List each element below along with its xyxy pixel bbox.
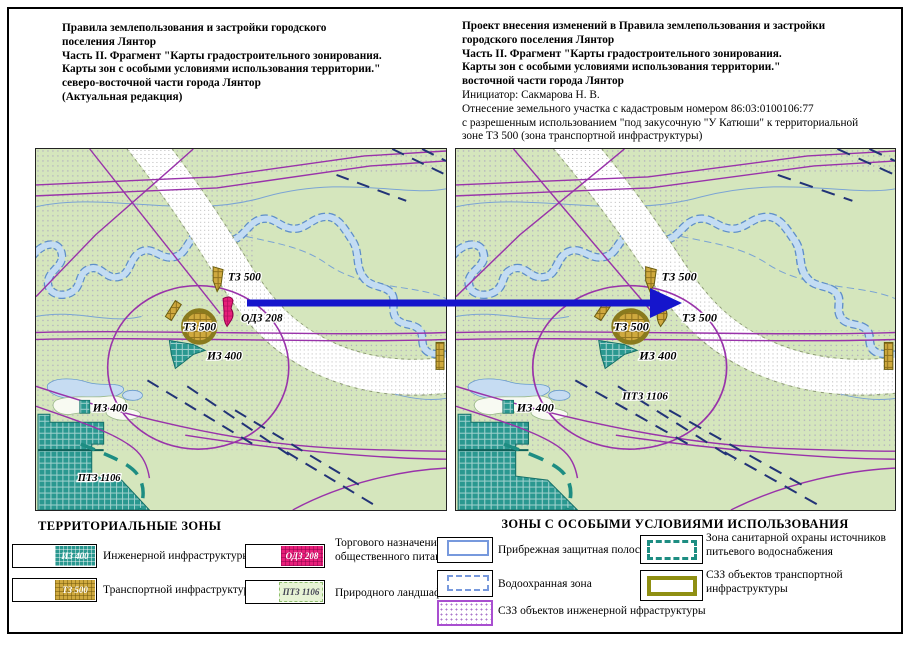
label-tz500-main: ТЗ 500 bbox=[183, 321, 216, 333]
label-patch: ТЗ 500 bbox=[682, 311, 717, 325]
legend-swatch-iz400: ИЗ 400 bbox=[12, 544, 97, 568]
szz-transport-symbol bbox=[647, 576, 697, 596]
zoning-map-current: ТЗ 500 ОДЗ 208 ТЗ 500 ИЗ 400 ИЗ 400 ПТЗ … bbox=[35, 148, 447, 511]
sanitary-zone-symbol bbox=[647, 540, 697, 560]
zone-code-odz208: ОДЗ 208 bbox=[281, 546, 323, 566]
zone-code-ptz1106: ПТЗ 1106 bbox=[279, 582, 323, 602]
legend-swatch-tz500: ТЗ 500 bbox=[12, 578, 97, 602]
label-iz400-bottom: ИЗ 400 bbox=[516, 401, 554, 415]
header-line: Карты зон с особыми условиями использова… bbox=[462, 61, 902, 75]
legend-label-line: СЗЗ объектов транспортной bbox=[706, 569, 843, 583]
header-line: Проект внесения изменений в Правила земл… bbox=[462, 20, 902, 34]
label-patch: ОДЗ 208 bbox=[241, 313, 283, 325]
legend-label-tz500: Транспортной инфраструктуры bbox=[103, 584, 257, 598]
legend-swatch-sanitary-zone bbox=[640, 535, 703, 564]
iz400-label-swatch bbox=[80, 400, 90, 413]
legend-swatch-szz-transport bbox=[640, 570, 703, 601]
label-ptz1106: ПТЗ 1106 bbox=[621, 391, 668, 403]
legend-label-line: Зона санитарной охраны источников bbox=[706, 532, 886, 546]
legend-label-line: общественного питания bbox=[335, 551, 453, 565]
tz500-edge-strip bbox=[884, 342, 893, 369]
header-line: городского поселения Лянтор bbox=[462, 34, 902, 48]
header-line: Инициатор: Сакмарова Н. В. bbox=[462, 89, 902, 103]
iz400-label-swatch bbox=[503, 400, 514, 413]
legend-swatch-szz-engineering bbox=[437, 600, 493, 626]
header-line: поселения Лянтор bbox=[62, 36, 454, 50]
header-line: Часть II. Фрагмент "Карты градостроитель… bbox=[462, 48, 902, 62]
legend-swatch-ptz1106: ПТЗ 1106 bbox=[245, 580, 325, 604]
legend-label-coastal-strip: Прибрежная защитная полоса bbox=[498, 544, 645, 558]
header-line: северо-восточной части города Лянтор bbox=[62, 77, 454, 91]
header-line: с разрешенным использованием "под закусо… bbox=[462, 117, 902, 131]
label-ptz1106: ПТЗ 1106 bbox=[77, 473, 122, 484]
document-page: Правила землепользования и застройки гор… bbox=[0, 0, 910, 645]
legend-swatch-odz208: ОДЗ 208 bbox=[245, 544, 325, 568]
header-line: Карты зон с особыми условиями использова… bbox=[62, 63, 454, 77]
header-right: Проект внесения изменений в Правила земл… bbox=[462, 20, 902, 144]
zone-code-iz400: ИЗ 400 bbox=[55, 546, 95, 566]
legend-label-ptz1106: Природного ландшафта bbox=[335, 587, 452, 601]
legend-label-line: питьевого водоснабжения bbox=[706, 546, 886, 560]
legend-label-line: Торгового назначения и bbox=[335, 537, 453, 551]
legend-swatch-coastal-strip bbox=[437, 537, 493, 563]
legend-special-title: ЗОНЫ С ОСОБЫМИ УСЛОВИЯМИ ИСПОЛЬЗОВАНИЯ bbox=[455, 517, 895, 532]
label-iz400-center: ИЗ 400 bbox=[638, 349, 676, 363]
zoning-map-proposed: ТЗ 500 ТЗ 500 ТЗ 500 ИЗ 400 ИЗ 400 ПТЗ 1… bbox=[455, 148, 896, 511]
header-line: Часть II. Фрагмент "Карты градостроитель… bbox=[62, 50, 454, 64]
legend-swatch-water-protection bbox=[437, 570, 493, 597]
legend-label-line: инфраструктуры bbox=[706, 583, 843, 597]
legend-label-szz-transport: СЗЗ объектов транспортной инфраструктуры bbox=[706, 569, 843, 596]
header-line: Отнесение земельного участка с кадастров… bbox=[462, 103, 902, 117]
water-protection-symbol bbox=[447, 575, 489, 591]
zone-code-tz500: ТЗ 500 bbox=[55, 580, 95, 600]
header-line: Правила землепользования и застройки гор… bbox=[62, 22, 454, 36]
header-line: (Актуальная редакция) bbox=[62, 91, 454, 105]
map-canvas-right: ТЗ 500 ТЗ 500 ТЗ 500 ИЗ 400 ИЗ 400 ПТЗ 1… bbox=[456, 149, 895, 510]
legend-label-szz-engineering: СЗЗ объектов инженерной нфраструктуры bbox=[498, 605, 706, 619]
legend-label-iz400: Инженерной инфраструктуры bbox=[103, 550, 250, 564]
header-line: зоне ТЗ 500 (зона транспортной инфрастру… bbox=[462, 130, 902, 144]
map-canvas-left: ТЗ 500 ОДЗ 208 ТЗ 500 ИЗ 400 ИЗ 400 ПТЗ … bbox=[36, 149, 446, 510]
header-line: восточной части города Лянтор bbox=[462, 75, 902, 89]
legend-label-sanitary-zone: Зона санитарной охраны источников питьев… bbox=[706, 532, 886, 559]
label-iz400-center: ИЗ 400 bbox=[206, 350, 242, 362]
label-tz500-main: ТЗ 500 bbox=[614, 320, 649, 334]
label-tz500-top: ТЗ 500 bbox=[662, 270, 697, 284]
label-iz400-bottom: ИЗ 400 bbox=[92, 402, 128, 414]
legend-label-odz208: Торгового назначения и общественного пит… bbox=[335, 537, 453, 564]
label-tz500-top: ТЗ 500 bbox=[228, 272, 261, 284]
legend-territorial-title: ТЕРРИТОРИАЛЬНЫЕ ЗОНЫ bbox=[38, 519, 221, 534]
header-left: Правила землепользования и застройки гор… bbox=[62, 22, 454, 105]
tz500-edge-strip bbox=[436, 342, 444, 369]
coastal-strip-symbol bbox=[447, 540, 489, 556]
legend-label-water-protection: Водоохранная зона bbox=[498, 578, 592, 592]
